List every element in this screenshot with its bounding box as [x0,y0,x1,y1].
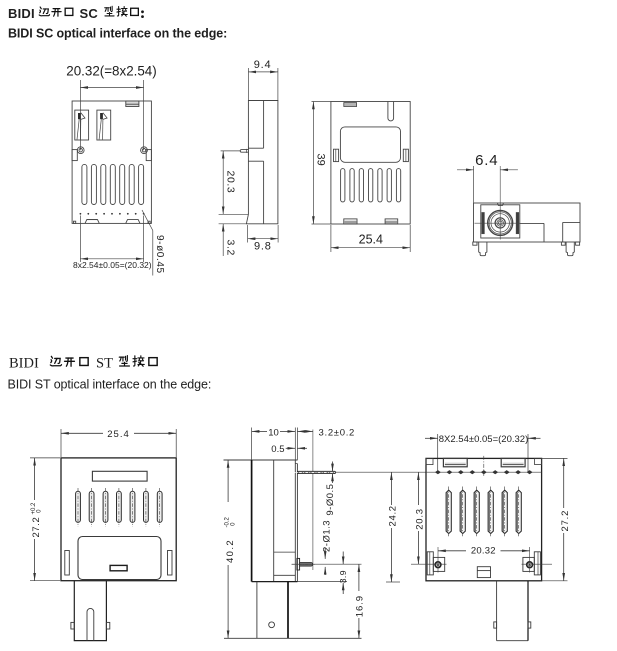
svg-text:9.8: 9.8 [254,241,272,253]
svg-text:BIDI ST optical interface on t: BIDI ST optical interface on the edge: [8,378,212,392]
svg-text:10: 10 [268,427,279,438]
svg-text:20.32: 20.32 [471,546,496,557]
svg-text:2-Ø1.3: 2-Ø1.3 [321,520,332,552]
svg-text:27.2: 27.2 [31,517,42,538]
svg-text:3.9: 3.9 [338,570,348,583]
svg-text:9-ø0.45: 9-ø0.45 [154,235,165,274]
svg-text:40.2: 40.2 [225,539,236,563]
svg-text:BIDI: BIDI [9,356,39,372]
svg-text:8x2.54±0.05=(20.32): 8x2.54±0.05=(20.32) [73,260,152,270]
svg-text:SC: SC [80,6,99,21]
svg-text:9-Ø0.5: 9-Ø0.5 [325,484,336,516]
svg-text:ST: ST [96,356,113,372]
svg-text:0: 0 [37,509,43,515]
svg-text:BIDI SC optical interface on t: BIDI SC optical interface on the edge: [8,27,227,41]
svg-text:8X2.54±0.05=(20.32): 8X2.54±0.05=(20.32) [439,434,528,445]
svg-text:24.2: 24.2 [387,505,398,526]
svg-text:0.5: 0.5 [271,444,284,455]
svg-text:16.9: 16.9 [355,595,366,617]
svg-text:27.2: 27.2 [560,510,571,532]
svg-text:3.2: 3.2 [224,240,236,256]
svg-text:3.2±0.2: 3.2±0.2 [319,427,356,438]
svg-text:9.4: 9.4 [254,59,272,71]
svg-text:25.4: 25.4 [359,232,383,246]
svg-text:BIDI: BIDI [8,6,35,21]
svg-text:6.4: 6.4 [475,152,498,169]
svg-text:0: 0 [230,522,236,528]
svg-text:25.4: 25.4 [107,429,130,440]
svg-text:20.32(=8x2.54): 20.32(=8x2.54) [66,64,156,79]
svg-text:20.3: 20.3 [414,508,425,530]
svg-text:20.3: 20.3 [224,171,236,194]
svg-text:39: 39 [314,154,326,166]
